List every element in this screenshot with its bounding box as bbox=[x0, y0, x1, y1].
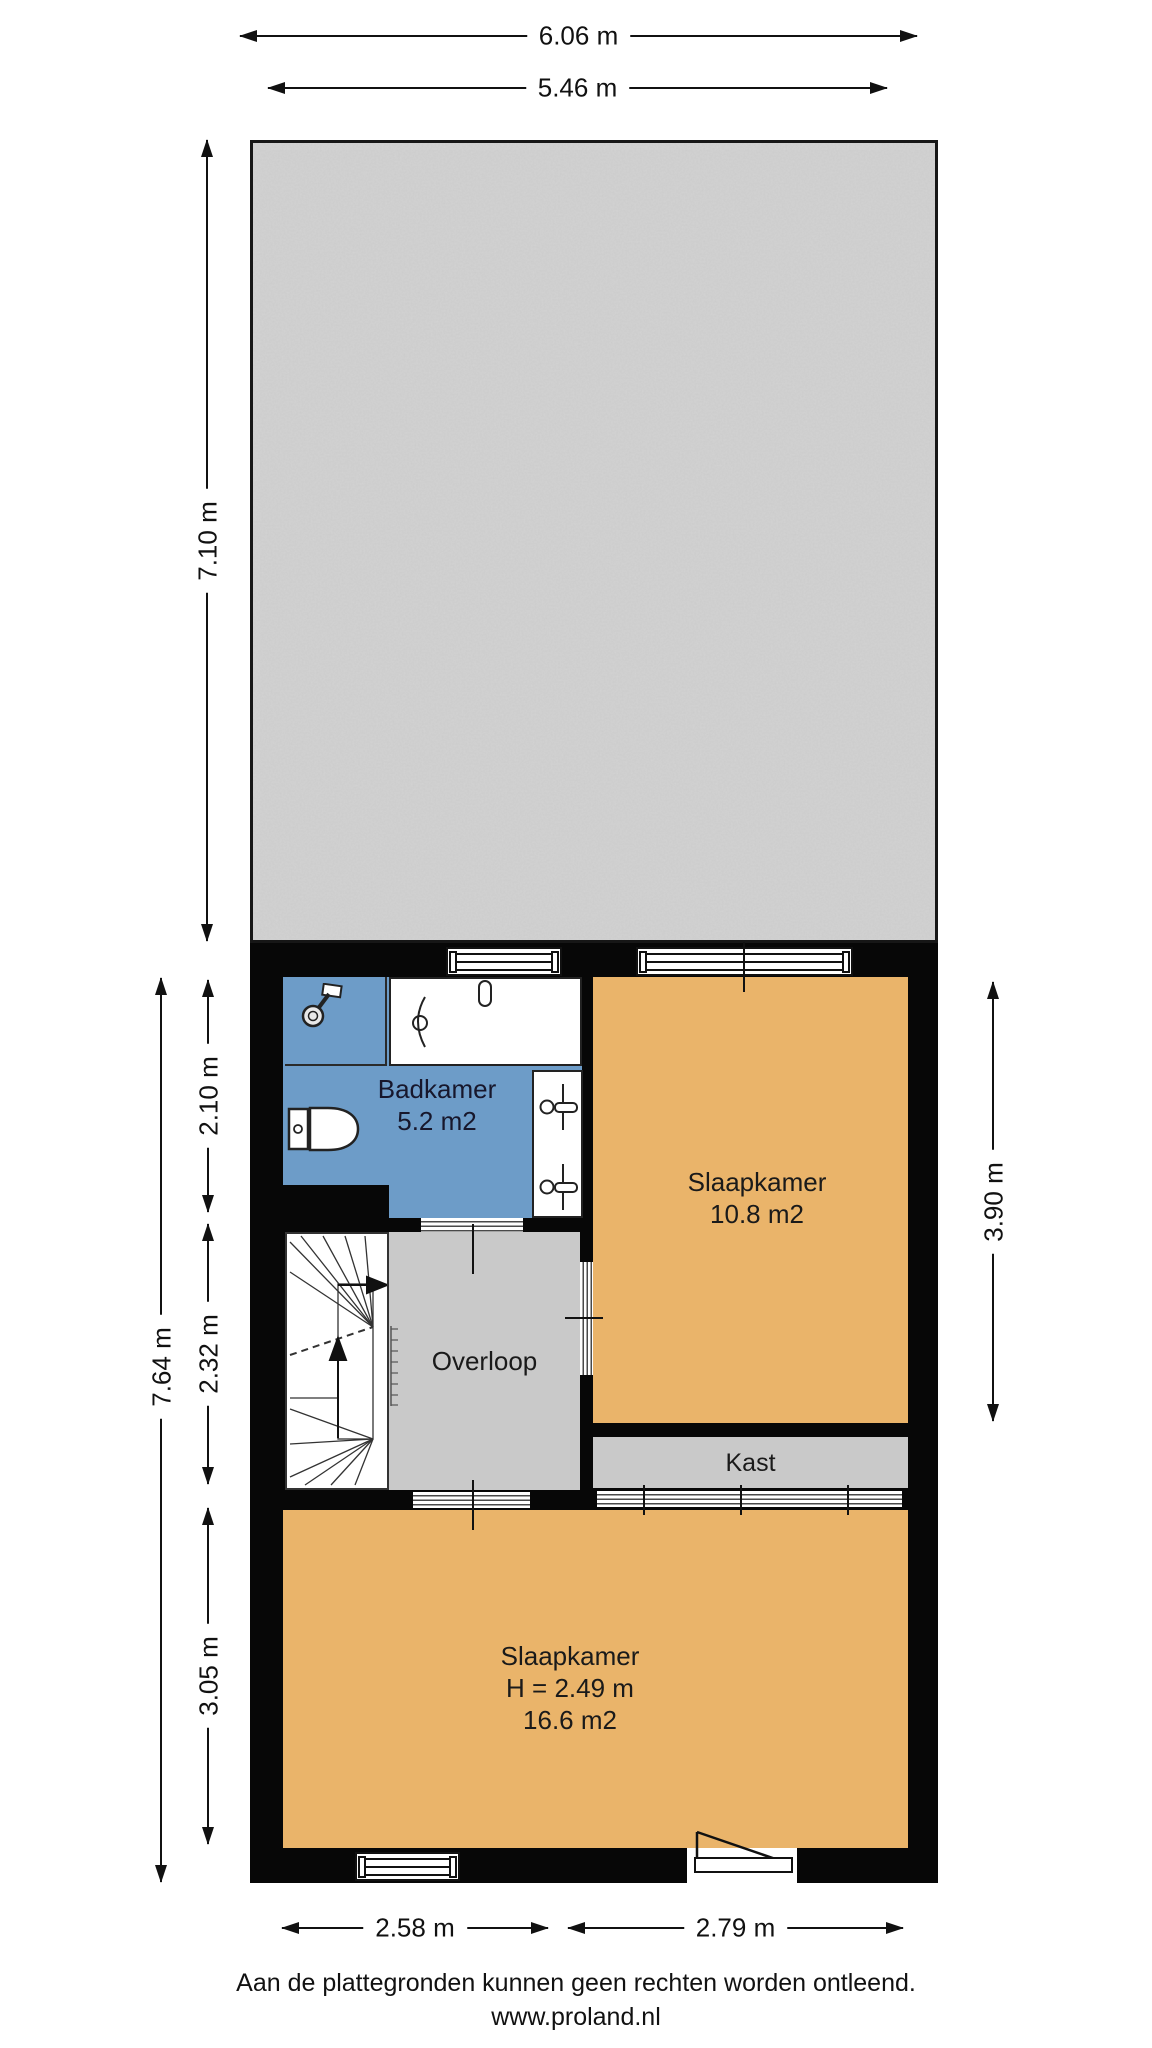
dim-badkamer-depth: 2.10 m bbox=[207, 980, 209, 1212]
dim-label: 6.06 m bbox=[527, 21, 631, 52]
roof-texture bbox=[253, 143, 935, 940]
washbasin-counter bbox=[532, 1070, 583, 1218]
window-center-tick bbox=[743, 942, 745, 992]
stair-handrail bbox=[389, 1326, 400, 1406]
footer: Aan de plattegronden kunnen geen rechten… bbox=[0, 1966, 1152, 2034]
slaapkamer-groot-name: Slaapkamer bbox=[501, 1640, 640, 1672]
faucet-icon bbox=[541, 1164, 578, 1210]
room-kast: Kast bbox=[593, 1437, 908, 1488]
overloop-label: Overloop bbox=[432, 1345, 538, 1377]
dim-label: 2.79 m bbox=[684, 1913, 788, 1944]
toilet-icon bbox=[287, 1104, 361, 1154]
footer-website: www.proland.nl bbox=[0, 2000, 1152, 2034]
dim-left-total: 7.64 m bbox=[160, 978, 162, 1882]
stairs-icon bbox=[285, 1232, 389, 1490]
badkamer-name: Badkamer bbox=[378, 1073, 497, 1105]
faucet-icon bbox=[541, 1084, 578, 1130]
badkamer-area: 5.2 m2 bbox=[378, 1105, 497, 1137]
shower-icon bbox=[298, 983, 346, 1031]
dim-label: 3.05 m bbox=[192, 1624, 227, 1728]
door-center-tick bbox=[472, 1224, 474, 1274]
door-center-tick bbox=[643, 1485, 645, 1515]
floorplan-page: Badkamer 5.2 m2 Slaapkamer 10.8 m2 Overl… bbox=[0, 0, 1152, 2048]
dim-label: 2.58 m bbox=[363, 1913, 467, 1944]
slaapkamer-groot-area: 16.6 m2 bbox=[501, 1704, 640, 1736]
dim-label: 3.90 m bbox=[977, 1150, 1012, 1254]
door-center-tick bbox=[740, 1485, 742, 1515]
door-center-tick bbox=[472, 1480, 474, 1530]
dim-top-total: 6.06 m bbox=[240, 35, 917, 37]
footer-disclaimer: Aan de plattegronden kunnen geen rechten… bbox=[0, 1966, 1152, 2000]
slaapkamer-groot-label: Slaapkamer H = 2.49 m 16.6 m2 bbox=[501, 1640, 640, 1736]
dim-top-inner: 5.46 m bbox=[268, 87, 887, 89]
room-overloop: Overloop bbox=[389, 1232, 580, 1490]
wall-badkamer-bottom bbox=[283, 1185, 389, 1232]
dim-label: 7.64 m bbox=[145, 1315, 180, 1419]
dim-roof-depth: 7.10 m bbox=[206, 140, 208, 941]
room-slaapkamer-groot: Slaapkamer H = 2.49 m 16.6 m2 bbox=[283, 1510, 908, 1848]
dim-bottom-left: 2.58 m bbox=[282, 1927, 548, 1929]
badkamer-label: Badkamer 5.2 m2 bbox=[378, 1073, 497, 1137]
room-slaapkamer-klein: Slaapkamer 10.8 m2 bbox=[593, 977, 908, 1423]
door-center-tick bbox=[565, 1317, 603, 1319]
dim-label: 7.10 m bbox=[191, 489, 226, 593]
dim-label: 2.32 m bbox=[192, 1302, 227, 1406]
dim-slaapkamer-groot-depth: 3.05 m bbox=[207, 1508, 209, 1844]
window-icon bbox=[355, 1852, 460, 1881]
dim-overloop-depth: 2.32 m bbox=[207, 1224, 209, 1484]
dim-slaapkamer-klein-depth: 3.90 m bbox=[992, 982, 994, 1421]
slaapkamer-klein-label: Slaapkamer 10.8 m2 bbox=[688, 1166, 827, 1230]
dim-bottom-right: 2.79 m bbox=[568, 1927, 903, 1929]
door-leaf bbox=[694, 1857, 793, 1873]
door-center-tick bbox=[847, 1485, 849, 1515]
roof-area bbox=[250, 140, 938, 943]
dim-label: 2.10 m bbox=[192, 1044, 227, 1148]
slaapkamer-klein-area: 10.8 m2 bbox=[688, 1198, 827, 1230]
bathtub-icon bbox=[389, 977, 582, 1066]
kast-label: Kast bbox=[725, 1447, 775, 1479]
dim-label: 5.46 m bbox=[526, 73, 630, 104]
slaapkamer-groot-height: H = 2.49 m bbox=[501, 1672, 640, 1704]
slaapkamer-klein-name: Slaapkamer bbox=[688, 1166, 827, 1198]
window-icon bbox=[446, 947, 562, 976]
